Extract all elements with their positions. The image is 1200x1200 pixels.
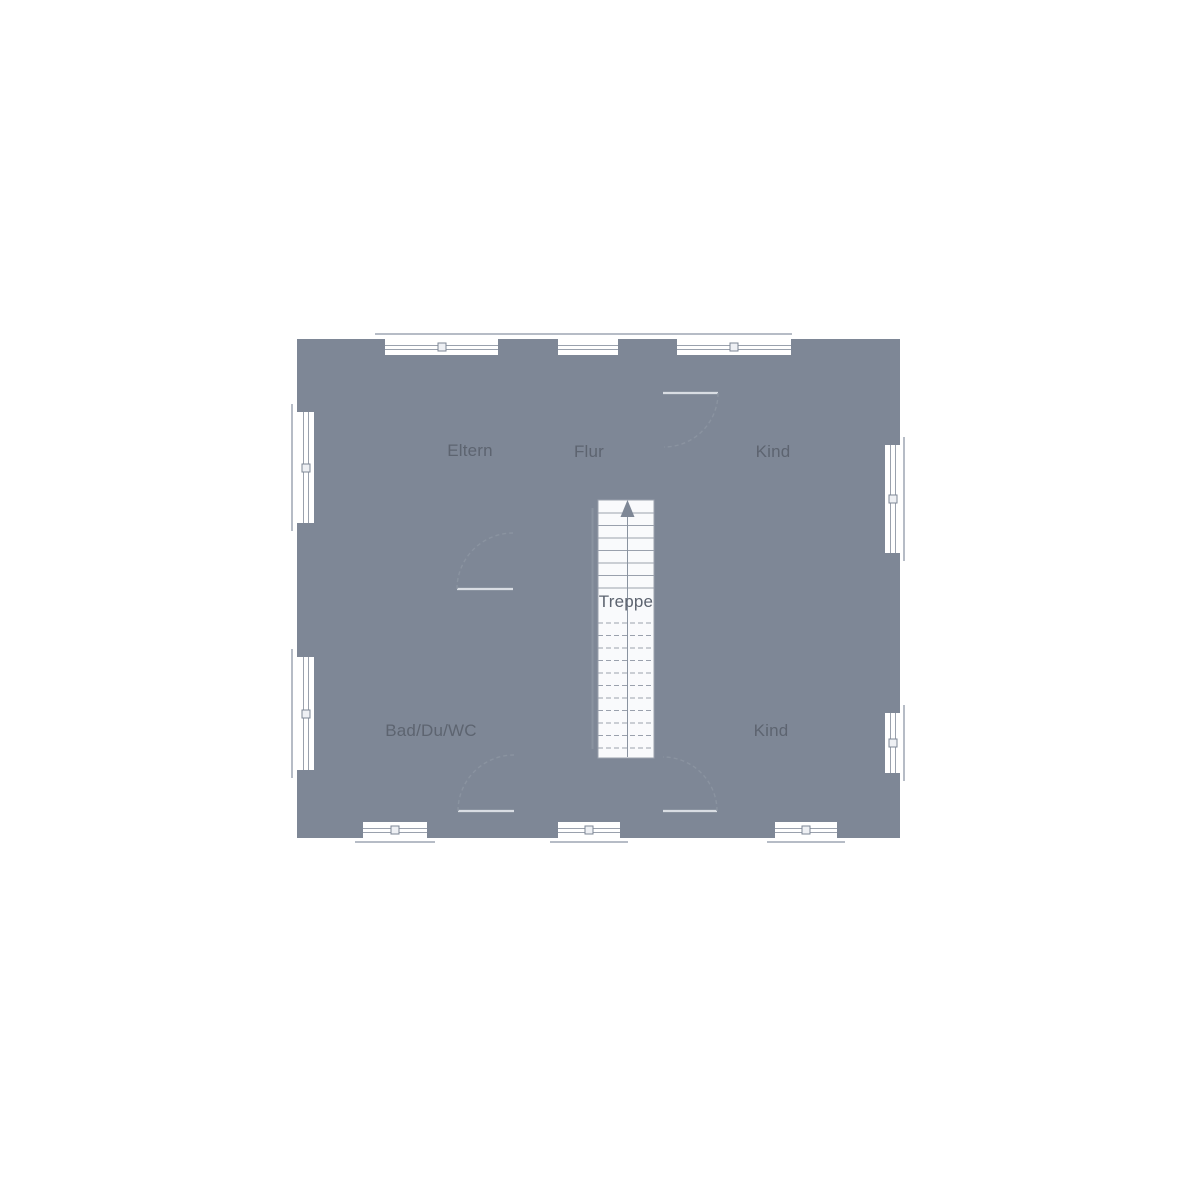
window-sill (767, 841, 845, 843)
wall-kind-kind (663, 583, 885, 592)
window (558, 822, 620, 838)
window-handle (391, 826, 400, 835)
door-leaf-bad (458, 809, 514, 813)
window (297, 657, 314, 770)
wall-stub-kind-door (653, 810, 663, 822)
room-label-treppe: Treppe (599, 592, 653, 612)
window (677, 339, 791, 355)
window (297, 412, 314, 523)
room-label-flur: Flur (574, 442, 604, 462)
wall-stairs-kind (653, 443, 663, 765)
wall-bad-plumbing (498, 648, 515, 763)
window (363, 822, 427, 838)
wall-eltern-bad (314, 641, 521, 648)
window-handle (888, 739, 897, 748)
wall-eltern-flur (512, 355, 521, 541)
room-label-eltern: Eltern (447, 441, 493, 461)
door-leaf-eltern (457, 587, 513, 591)
floorplan-canvas: Eltern Flur Kind Treppe Bad/Du/WC Kind (0, 0, 1200, 1200)
window-sill (291, 404, 293, 531)
window-sill (903, 705, 905, 781)
window-handle (730, 343, 739, 352)
window (385, 339, 498, 355)
window-sill (375, 333, 792, 335)
room-label-bad: Bad/Du/WC (385, 721, 477, 741)
room-label-kind-bottom: Kind (754, 721, 789, 741)
window-handle (301, 463, 310, 472)
window (885, 713, 900, 773)
window-sill (355, 841, 435, 843)
window-sill (903, 437, 905, 561)
window-handle (437, 343, 446, 352)
wall-stub-bad-door (513, 810, 522, 822)
window-handle (301, 709, 310, 718)
window (558, 339, 618, 355)
window (775, 822, 837, 838)
door-leaf-kind-bottom (663, 809, 717, 813)
wall-eltern-hall-lower (512, 591, 521, 648)
room-label-kind-top: Kind (756, 442, 791, 462)
window-handle (802, 826, 811, 835)
window-sill (550, 841, 628, 843)
window-handle (888, 495, 897, 504)
window-sill (291, 649, 293, 778)
window-handle (585, 826, 594, 835)
door-leaf-kind-top (663, 391, 718, 395)
window (885, 445, 900, 553)
wall-flur-kind-top (653, 355, 663, 392)
